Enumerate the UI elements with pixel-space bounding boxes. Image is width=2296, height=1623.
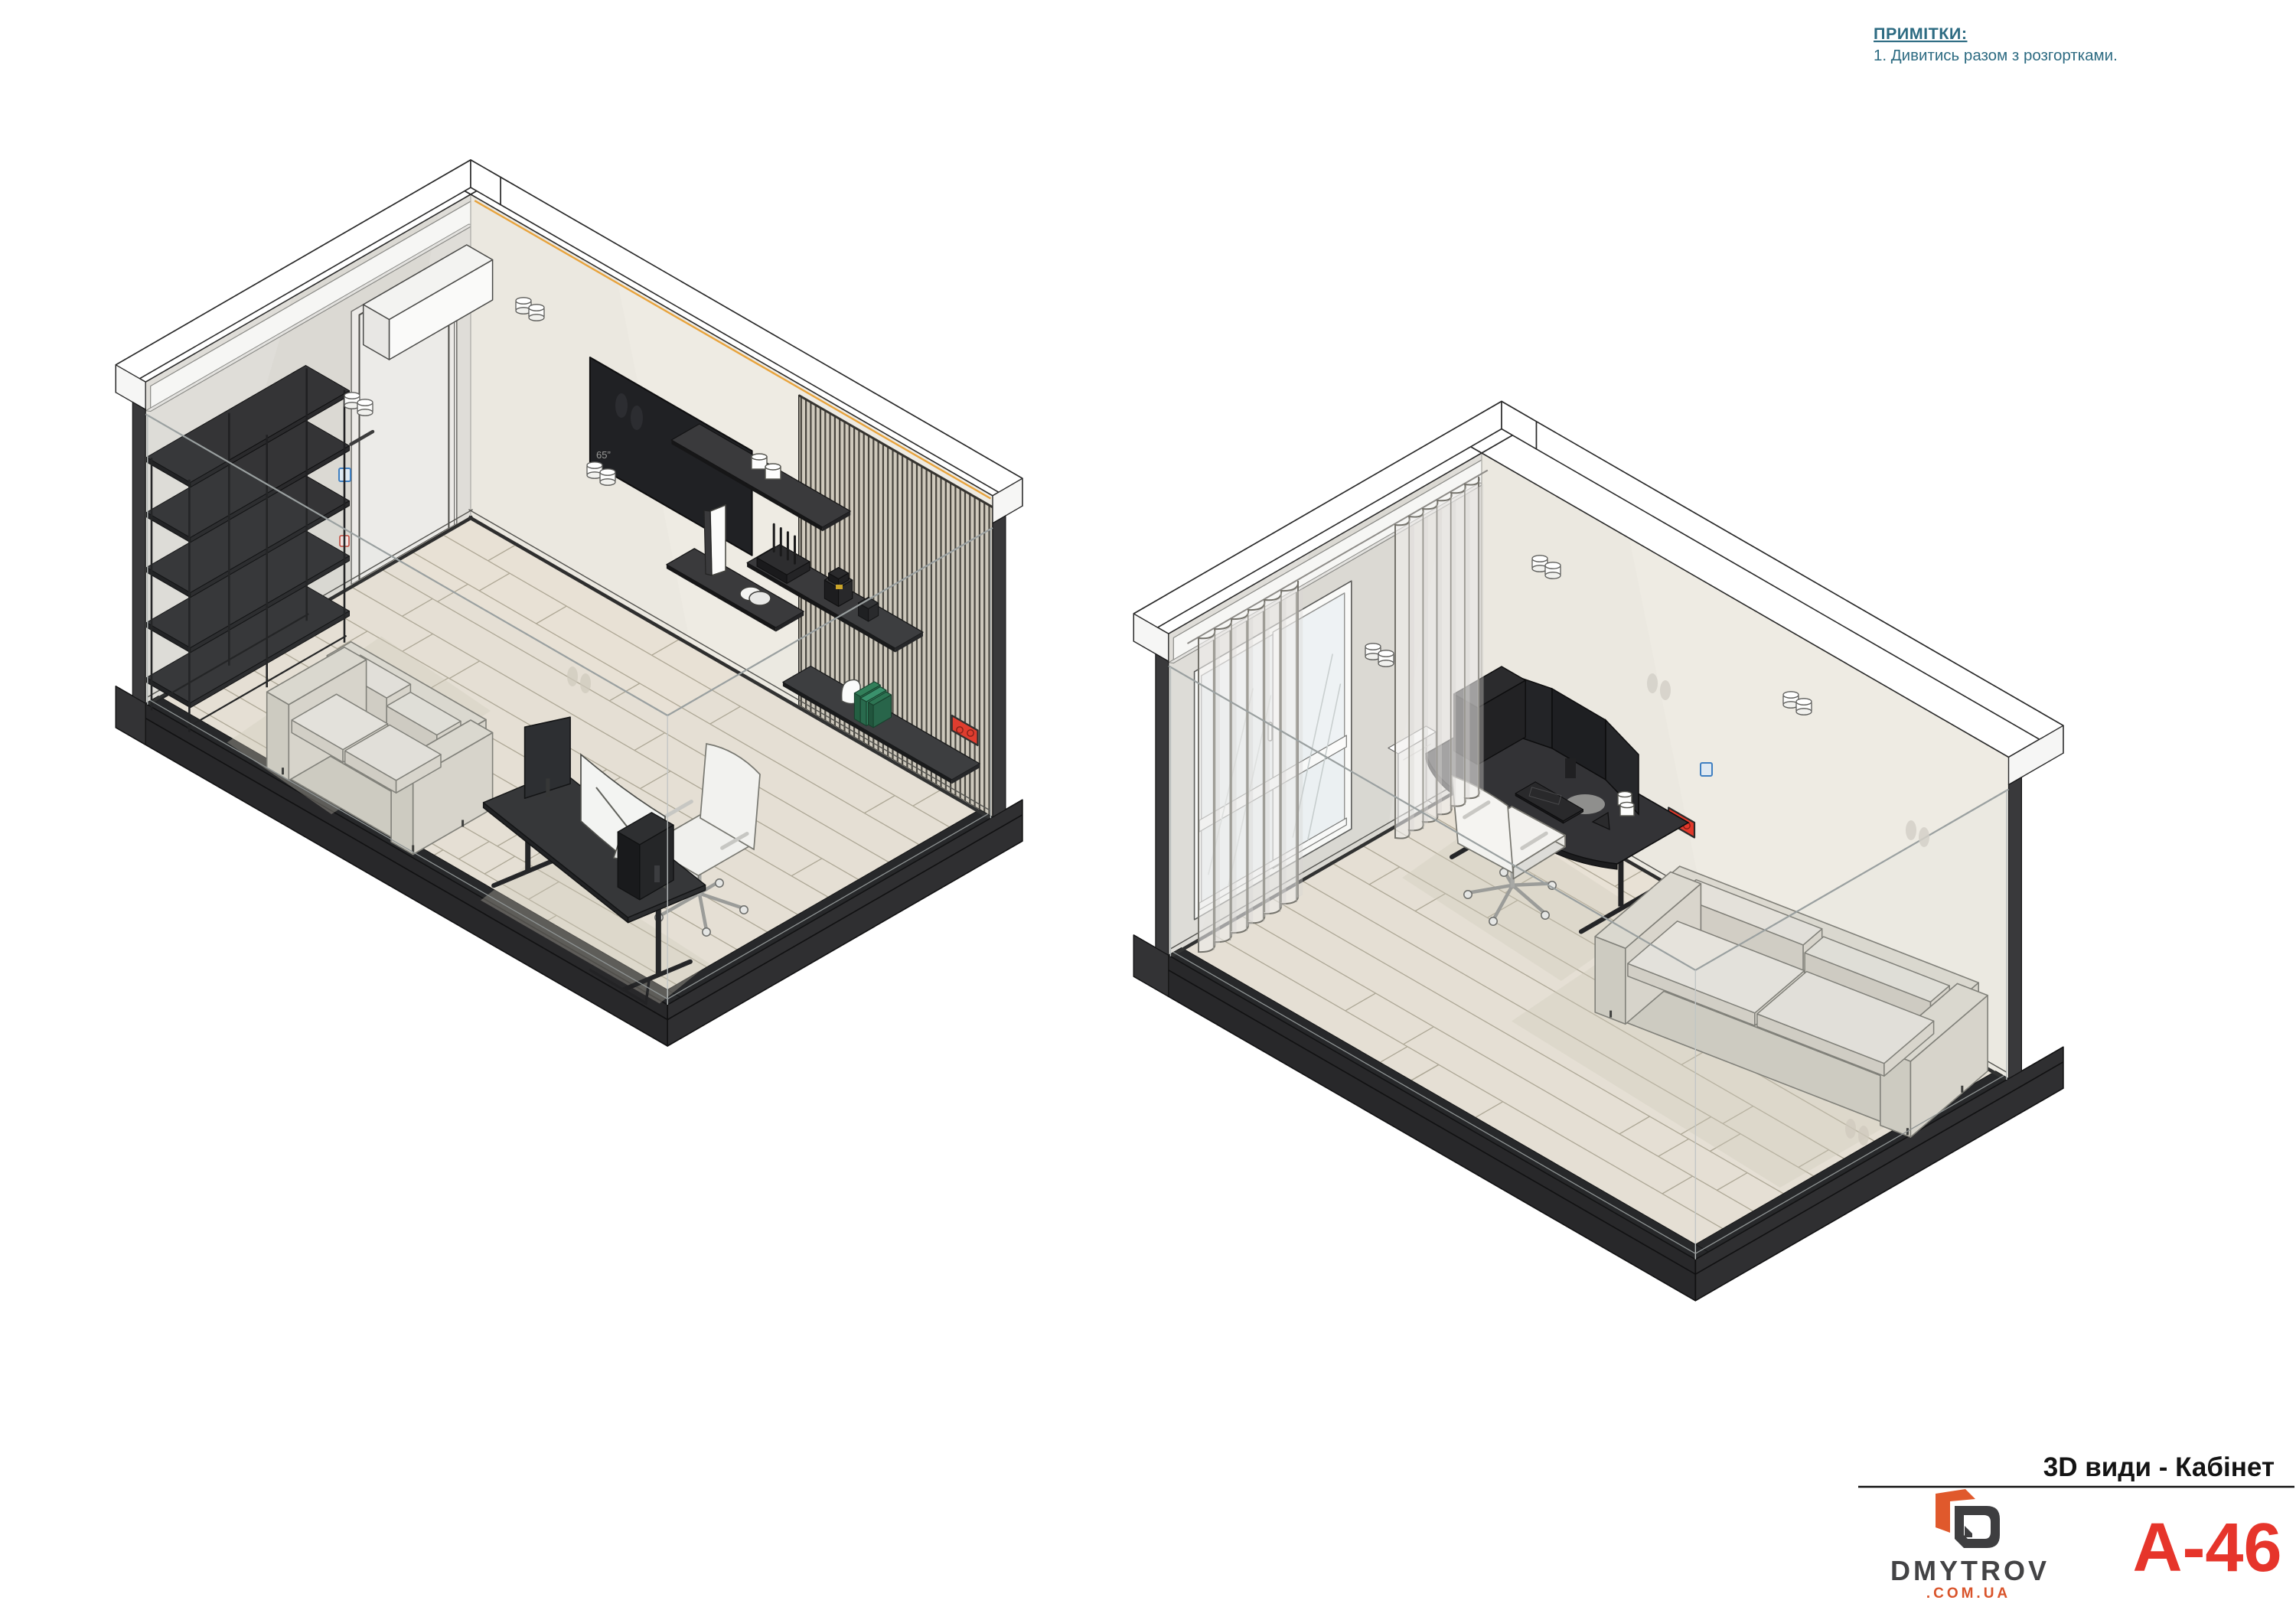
svg-text:3D види - Кабінет: 3D види - Кабінет [2043, 1452, 2275, 1482]
svg-text:.COM.UA: .COM.UA [1926, 1586, 2011, 1602]
svg-text:А-46: А-46 [2132, 1510, 2281, 1586]
svg-text:1. Дивитись разом з розгорткам: 1. Дивитись разом з розгортками. [1874, 47, 2118, 64]
svg-text:ПРИМІТКИ:: ПРИМІТКИ: [1874, 24, 1968, 43]
svg-text:DMYTROV: DMYTROV [1890, 1555, 2050, 1586]
svg-text:65”: 65” [596, 449, 611, 461]
